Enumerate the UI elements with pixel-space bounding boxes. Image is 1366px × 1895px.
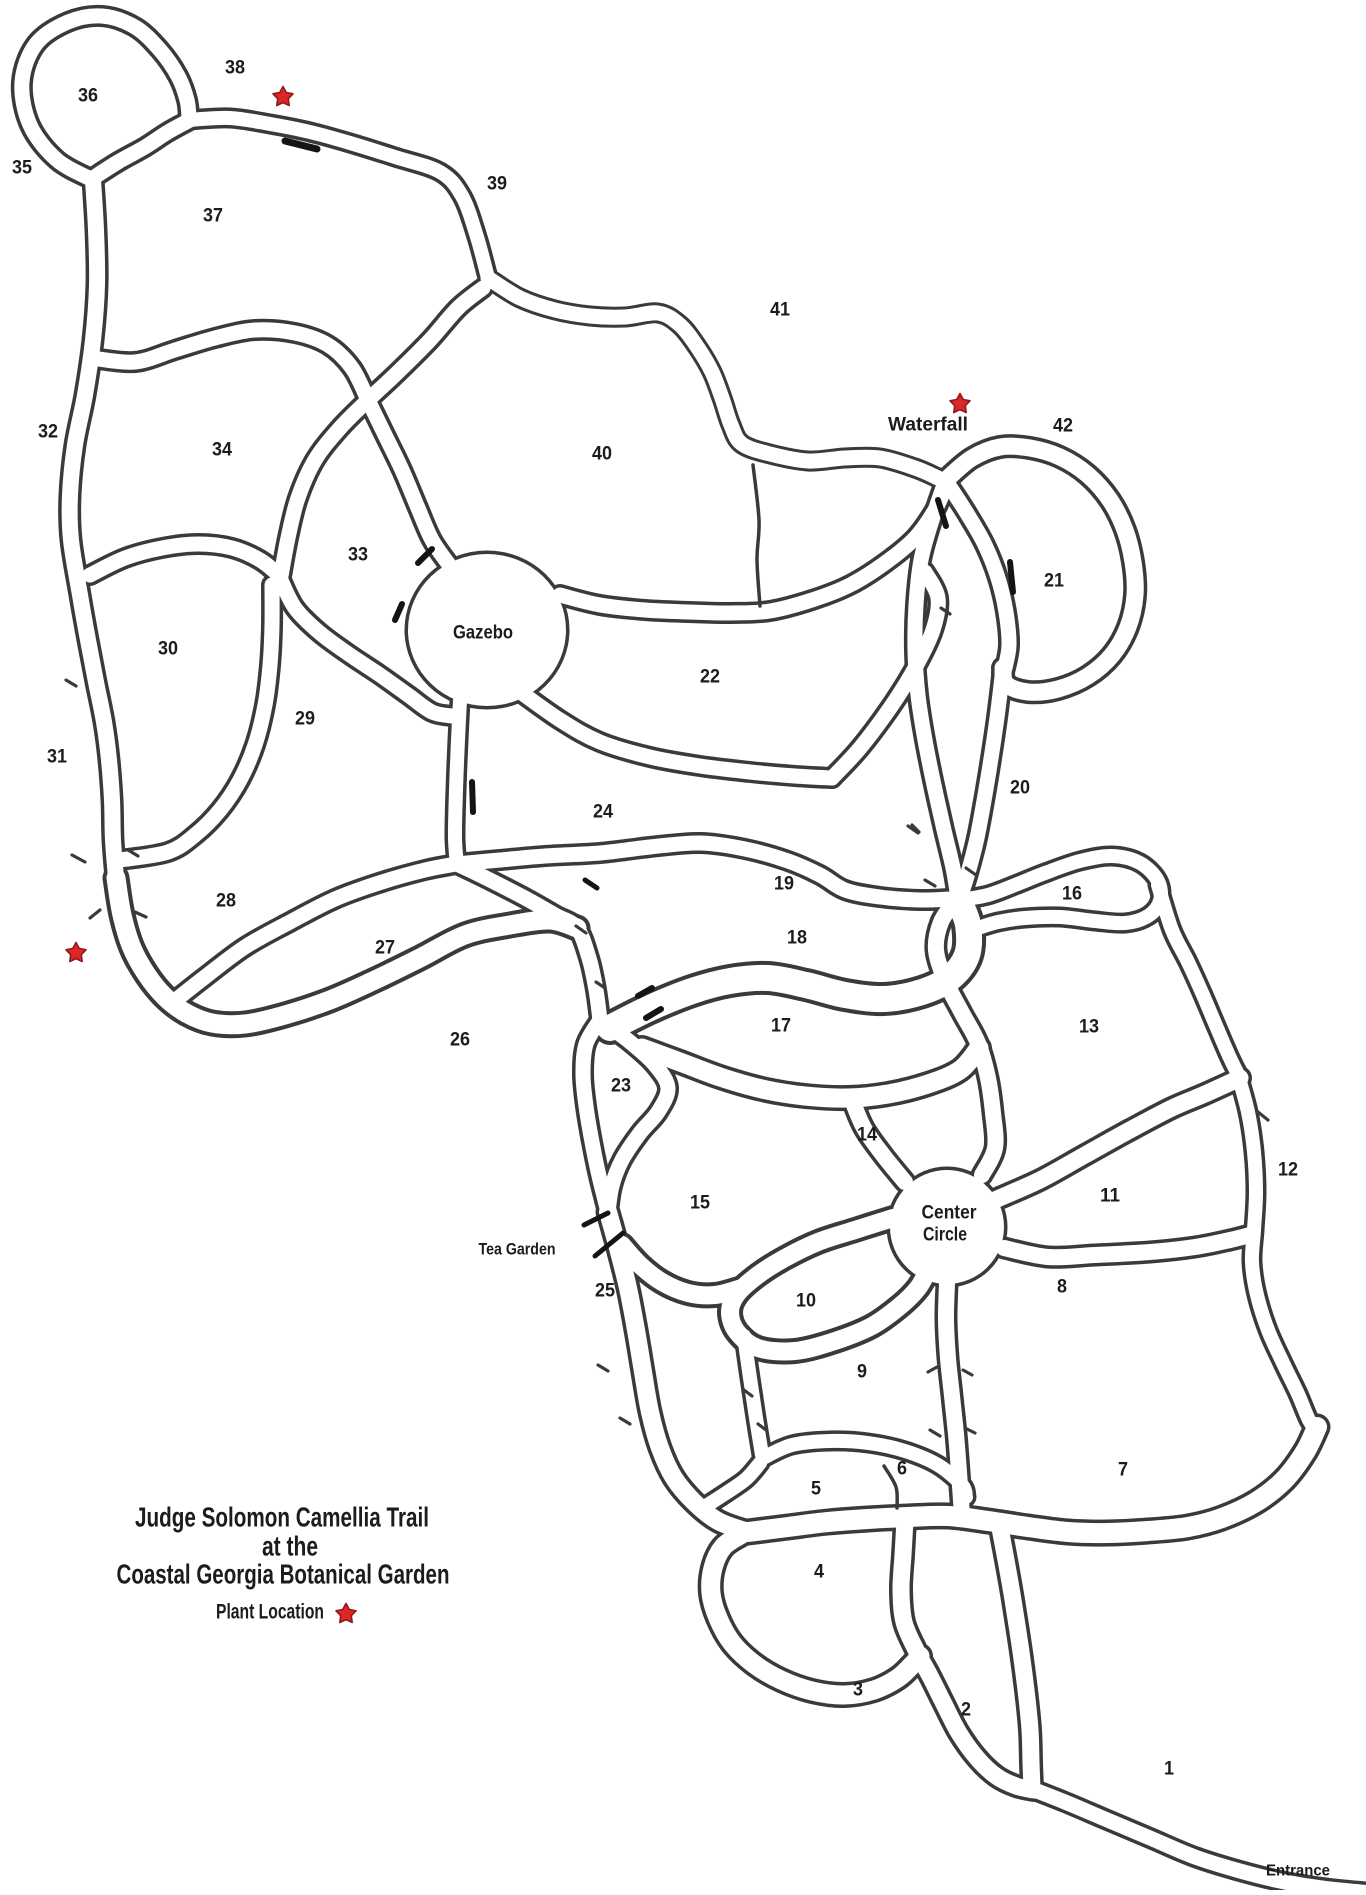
svg-text:16: 16	[1062, 884, 1082, 905]
svg-text:Entrance: Entrance	[1266, 1863, 1330, 1880]
svg-text:41: 41	[770, 300, 790, 321]
svg-text:12: 12	[1278, 1160, 1298, 1181]
svg-text:37: 37	[203, 206, 223, 227]
svg-text:17: 17	[771, 1016, 791, 1037]
svg-text:14: 14	[857, 1125, 877, 1146]
svg-text:28: 28	[216, 891, 236, 912]
svg-text:11: 11	[1100, 1186, 1120, 1207]
svg-text:18: 18	[787, 928, 807, 949]
svg-text:Judge Solomon Camellia Trail: Judge Solomon Camellia Trail	[135, 1502, 429, 1533]
svg-text:Center: Center	[922, 1203, 978, 1224]
svg-text:22: 22	[700, 667, 720, 688]
svg-text:39: 39	[487, 174, 507, 195]
svg-text:32: 32	[38, 422, 58, 443]
svg-text:19: 19	[774, 874, 794, 895]
svg-text:8: 8	[1057, 1277, 1067, 1298]
svg-text:5: 5	[811, 1479, 821, 1500]
svg-text:34: 34	[212, 440, 232, 461]
svg-text:20: 20	[1010, 778, 1030, 799]
svg-text:33: 33	[348, 545, 368, 566]
svg-text:Gazebo: Gazebo	[453, 623, 513, 644]
svg-text:25: 25	[595, 1281, 615, 1302]
svg-text:13: 13	[1079, 1017, 1099, 1038]
svg-text:3: 3	[853, 1680, 863, 1701]
svg-text:Waterfall: Waterfall	[888, 415, 968, 436]
svg-text:36: 36	[78, 86, 98, 107]
svg-text:27: 27	[375, 938, 395, 959]
svg-text:10: 10	[796, 1291, 816, 1312]
svg-text:4: 4	[814, 1562, 824, 1583]
svg-text:2: 2	[961, 1700, 971, 1721]
svg-text:15: 15	[690, 1193, 710, 1214]
svg-text:40: 40	[592, 444, 612, 465]
svg-text:at the: at the	[262, 1531, 318, 1562]
svg-text:29: 29	[295, 709, 315, 730]
svg-text:26: 26	[450, 1030, 470, 1051]
svg-text:21: 21	[1044, 571, 1064, 592]
svg-text:38: 38	[225, 58, 245, 79]
svg-text:35: 35	[12, 158, 32, 179]
svg-text:7: 7	[1118, 1460, 1128, 1481]
svg-text:Coastal Georgia Botanical Gard: Coastal Georgia Botanical Garden	[117, 1559, 450, 1590]
svg-text:31: 31	[47, 747, 67, 768]
svg-text:30: 30	[158, 639, 178, 660]
svg-text:23: 23	[611, 1076, 631, 1097]
svg-text:24: 24	[593, 802, 613, 823]
svg-text:9: 9	[857, 1362, 867, 1383]
svg-text:Tea Garden: Tea Garden	[479, 1240, 556, 1259]
svg-text:Plant Location: Plant Location	[216, 1601, 324, 1624]
svg-text:Circle: Circle	[923, 1225, 967, 1246]
svg-text:6: 6	[897, 1459, 907, 1480]
svg-text:42: 42	[1053, 416, 1073, 437]
svg-text:1: 1	[1164, 1759, 1174, 1780]
